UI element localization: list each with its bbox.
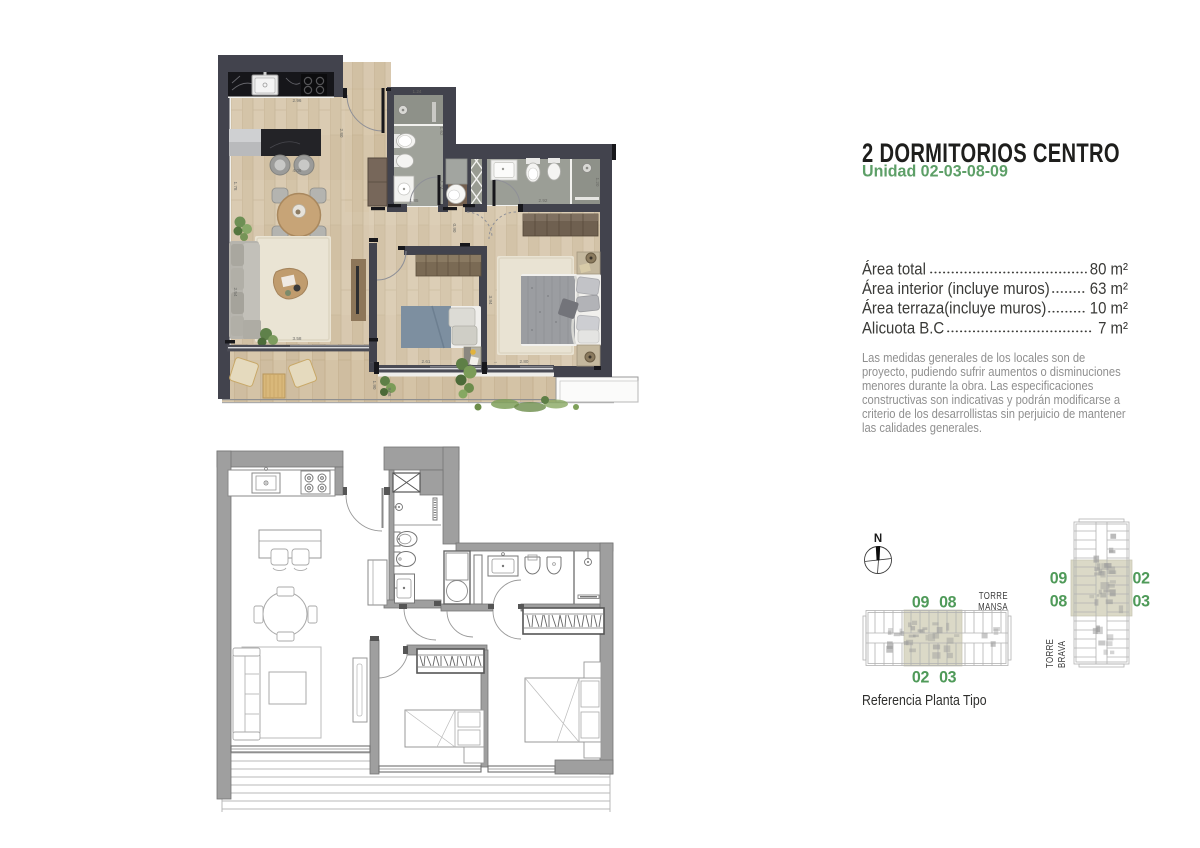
svg-text:1.78: 1.78: [233, 182, 238, 191]
svg-text:08: 08: [1050, 592, 1067, 610]
svg-text:3.94: 3.94: [488, 296, 493, 305]
svg-text:3.58: 3.58: [293, 336, 302, 341]
svg-text:80 m²: 80 m²: [1090, 261, 1129, 279]
svg-text:BRAVA: BRAVA: [1056, 641, 1067, 668]
svg-text:10 m²: 10 m²: [1090, 300, 1129, 318]
svg-text:N: N: [874, 533, 882, 545]
svg-text:Unidad 02-03-08-09: Unidad 02-03-08-09: [862, 162, 1008, 181]
svg-text:1.24: 1.24: [413, 89, 422, 94]
svg-text:Referencia Planta Tipo: Referencia Planta Tipo: [862, 692, 987, 708]
svg-text:1.85: 1.85: [410, 198, 419, 203]
svg-text:7 m²: 7 m²: [1098, 320, 1129, 338]
svg-text:→: →: [493, 359, 498, 364]
svg-text:2.61: 2.61: [422, 359, 431, 364]
svg-text:02: 02: [1132, 569, 1149, 587]
svg-text:4.06: 4.06: [293, 168, 302, 173]
svg-text:Área interior (incluye muros): Área interior (incluye muros): [862, 278, 1050, 298]
svg-text:63 m²: 63 m²: [1090, 280, 1129, 298]
svg-text:2.54: 2.54: [233, 288, 238, 297]
svg-text:03: 03: [939, 668, 956, 686]
svg-text:menores durante la obra. Las e: menores durante la obra. Las especificac…: [862, 378, 1093, 393]
svg-text:03: 03: [1132, 592, 1149, 610]
svg-text:2.80: 2.80: [339, 129, 344, 138]
svg-text:TORRE: TORRE: [979, 590, 1008, 601]
svg-text:1.62: 1.62: [439, 127, 444, 136]
svg-text:2.92: 2.92: [539, 198, 548, 203]
svg-text:08: 08: [939, 593, 956, 611]
svg-text:TORRE: TORRE: [1044, 639, 1055, 668]
svg-text:las calidades generales.: las calidades generales.: [862, 420, 982, 435]
svg-text:09: 09: [1050, 569, 1067, 587]
svg-text:2.80: 2.80: [520, 359, 529, 364]
svg-text:1.24: 1.24: [439, 181, 444, 190]
svg-text:1.90: 1.90: [372, 381, 377, 390]
svg-text:2.96: 2.96: [293, 98, 302, 103]
svg-text:constructivas son indicativas: constructivas son indicativas y podrán m…: [862, 392, 1120, 407]
svg-text:9.08: 9.08: [387, 388, 392, 397]
svg-text:02: 02: [912, 668, 929, 686]
svg-text:Alicuota B.C: Alicuota B.C: [862, 320, 944, 338]
svg-text:Las medidas generales de los l: Las medidas generales de los locales son…: [862, 350, 1086, 365]
svg-text:→: →: [369, 359, 374, 364]
svg-text:Área terraza(incluye muros): Área terraza(incluye muros): [862, 298, 1046, 318]
svg-text:criterio de los desarrollistas: criterio de los desarrollistas sin perju…: [862, 406, 1126, 421]
svg-text:proyecto, pudiendo sufrir aume: proyecto, pudiendo sufrir aumentos o dis…: [862, 364, 1121, 379]
svg-text:1.20: 1.20: [595, 178, 600, 187]
svg-text:Área total: Área total: [862, 259, 926, 279]
svg-text:0.90: 0.90: [452, 224, 457, 233]
svg-text:09: 09: [912, 593, 929, 611]
